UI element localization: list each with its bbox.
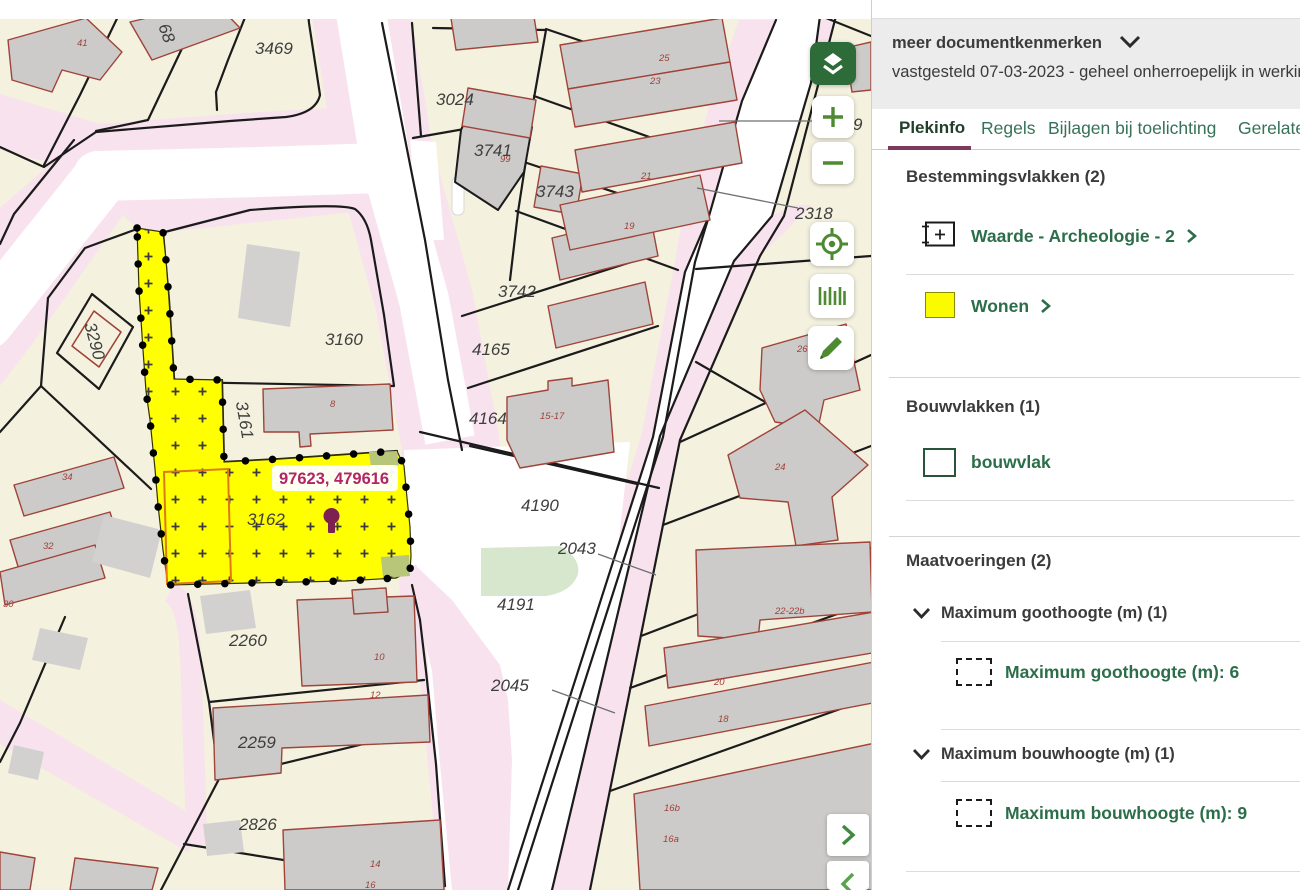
- svg-text:4164: 4164: [469, 409, 507, 428]
- svg-text:16b: 16b: [664, 803, 680, 814]
- svg-text:3160: 3160: [325, 330, 363, 349]
- svg-text:2826: 2826: [238, 815, 277, 834]
- svg-text:41: 41: [77, 38, 88, 49]
- svg-text:19: 19: [624, 221, 635, 232]
- svg-text:12: 12: [370, 690, 381, 701]
- svg-text:3742: 3742: [498, 282, 536, 301]
- svg-text:16a: 16a: [663, 834, 679, 845]
- svg-text:14: 14: [370, 859, 381, 870]
- svg-text:2260: 2260: [228, 631, 267, 650]
- svg-text:2259: 2259: [237, 733, 276, 752]
- svg-text:22-22b: 22-22b: [774, 606, 805, 617]
- svg-text:32: 32: [43, 541, 54, 552]
- svg-text:30: 30: [3, 599, 14, 610]
- svg-text:4191: 4191: [497, 595, 535, 614]
- svg-text:9: 9: [853, 115, 863, 134]
- svg-text:24: 24: [774, 462, 786, 473]
- svg-text:3743: 3743: [536, 182, 574, 201]
- svg-text:8: 8: [330, 399, 336, 410]
- svg-text:21: 21: [640, 171, 652, 182]
- svg-text:4190: 4190: [521, 496, 559, 515]
- svg-text:3024: 3024: [436, 90, 474, 109]
- svg-text:2043: 2043: [557, 539, 596, 558]
- svg-text:2318: 2318: [794, 204, 833, 223]
- svg-text:26: 26: [796, 344, 808, 355]
- svg-text:34: 34: [62, 472, 73, 483]
- svg-text:97623, 479616: 97623, 479616: [279, 470, 389, 488]
- svg-text:15-17: 15-17: [540, 411, 565, 422]
- svg-text:99: 99: [500, 154, 511, 165]
- svg-text:10: 10: [374, 652, 385, 663]
- svg-text:18: 18: [718, 714, 729, 725]
- svg-text:16: 16: [365, 880, 376, 890]
- svg-text:20: 20: [713, 677, 725, 688]
- svg-text:3162: 3162: [247, 510, 285, 529]
- svg-text:23: 23: [649, 76, 661, 87]
- svg-text:25: 25: [658, 53, 670, 64]
- svg-text:2045: 2045: [490, 676, 529, 695]
- svg-text:3469: 3469: [255, 39, 293, 58]
- svg-text:4165: 4165: [472, 340, 510, 359]
